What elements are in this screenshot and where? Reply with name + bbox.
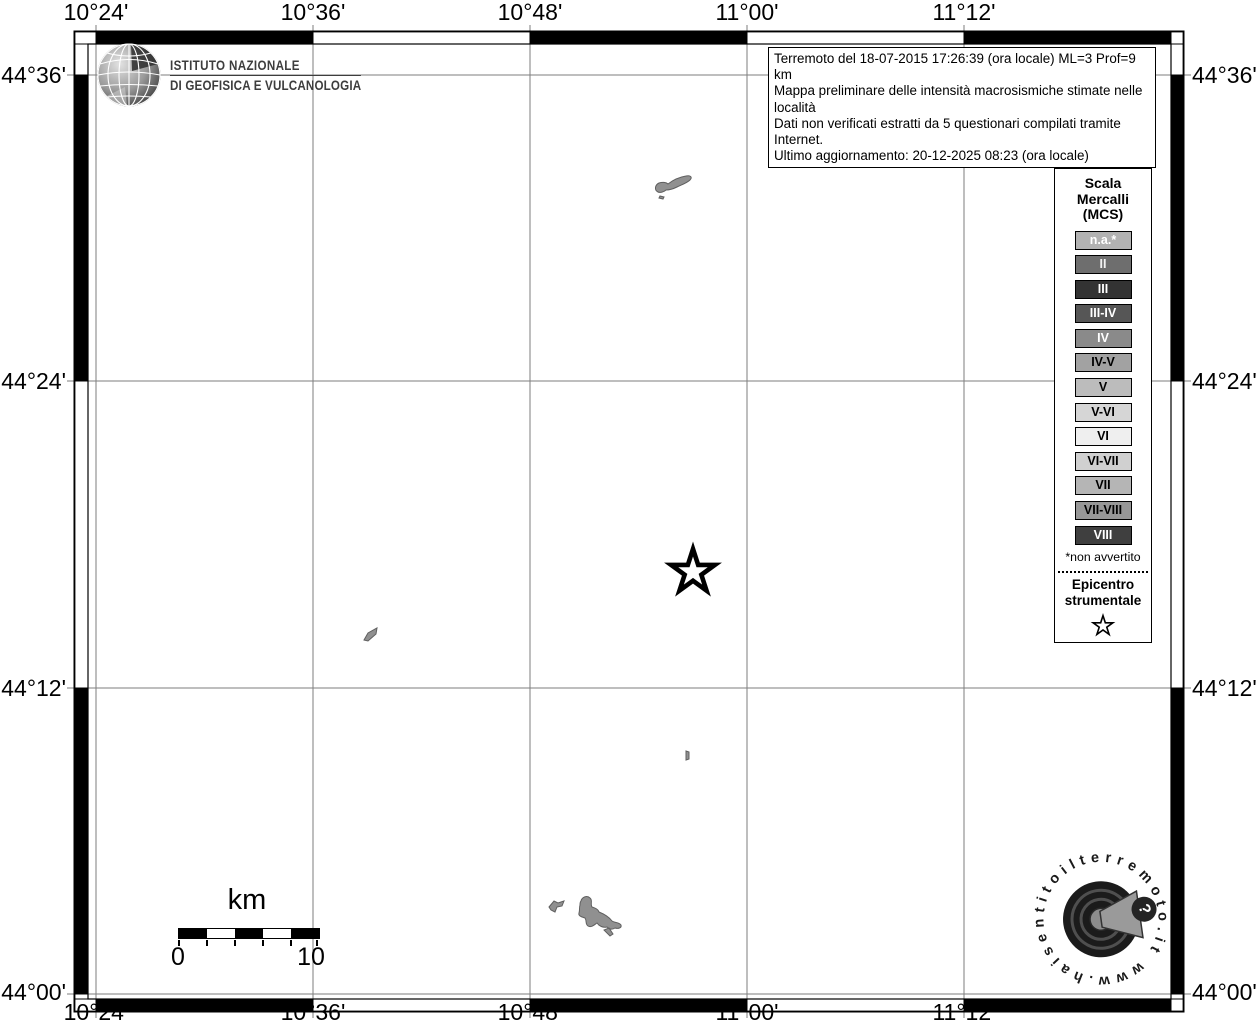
earthquake-info-box: Terremoto del 18-07-2015 17:26:39 (ora l… xyxy=(768,47,1156,168)
info-line-map: Mappa preliminare delle intensità macros… xyxy=(774,83,1150,115)
legend-item-vii-viii: VII-VIII xyxy=(1075,501,1132,520)
ingv-logo-text: ISTITUTO NAZIONALE DI GEOFISICA E VULCAN… xyxy=(170,58,361,93)
lat-label-right-2: 44°24' xyxy=(1192,368,1256,394)
legend-item-na: n.a.* xyxy=(1075,231,1132,250)
ingv-globe-icon xyxy=(96,42,162,108)
lon-label-bottom-3: 10°48' xyxy=(470,1000,590,1024)
lon-label-bottom-5: 11°12' xyxy=(904,1000,1024,1024)
lat-label-right-4: 44°00' xyxy=(1192,979,1256,1005)
lon-label-top-4: 11°00' xyxy=(687,0,807,24)
legend-title-line1: Scala xyxy=(1055,176,1151,192)
info-line-update: Ultimo aggiornamento: 20-12-2025 08:23 (… xyxy=(774,148,1150,164)
haisentitoilterremoto-logo: ? www.haisentitoilterremoto.it xyxy=(1028,845,1178,995)
small-feature xyxy=(364,628,377,641)
scale-tick xyxy=(206,940,208,946)
ingv-logo-line2: DI GEOFISICA E VULCANOLOGIA xyxy=(170,76,361,93)
scale-tick xyxy=(234,940,236,946)
lon-label-top-1: 10°24' xyxy=(36,0,156,24)
lat-label-left-1: 44°36' xyxy=(0,62,66,88)
info-line-data: Dati non verificati estratti da 5 questi… xyxy=(774,116,1150,148)
legend-star-icon xyxy=(1089,612,1117,640)
lat-label-left-3: 44°12' xyxy=(0,675,66,701)
lake-feature xyxy=(655,176,691,199)
legend-item-vi-vii: VI-VII xyxy=(1075,452,1132,471)
lon-label-top-5: 11°12' xyxy=(904,0,1024,24)
lat-label-left-4: 44°00' xyxy=(0,979,66,1005)
coastline-features xyxy=(364,176,691,936)
legend-item-iii-iv: III-IV xyxy=(1075,304,1132,323)
scale-bar-unit: km xyxy=(187,884,307,917)
lon-label-top-2: 10°36' xyxy=(253,0,373,24)
tiny-feature xyxy=(686,751,689,760)
lon-label-bottom-2: 10°36' xyxy=(253,1000,373,1024)
legend-divider xyxy=(1058,571,1148,573)
scale-bar-end: 10 xyxy=(291,943,331,972)
map-frame-band xyxy=(74,31,1184,1012)
grid-lines xyxy=(67,25,1191,1018)
ingv-logo: ISTITUTO NAZIONALE DI GEOFISICA E VULCAN… xyxy=(96,42,356,112)
legend-item-v: V xyxy=(1075,378,1132,397)
scale-tick xyxy=(262,940,264,946)
scale-bar-segment xyxy=(235,929,263,938)
legend-footnote: *non avvertito xyxy=(1055,550,1151,564)
scale-bar-segment xyxy=(263,929,291,938)
scale-bar-segment xyxy=(179,929,207,938)
legend-item-iv-v: IV-V xyxy=(1075,353,1132,372)
epicenter-star-marker xyxy=(671,549,715,591)
scale-bar-segment xyxy=(291,929,319,938)
legend-epicenter-label: Epicentro strumentale xyxy=(1055,577,1151,608)
legend-epicenter-line1: Epicentro xyxy=(1055,577,1151,593)
river-feature-small xyxy=(549,901,564,912)
lon-label-bottom-4: 11°00' xyxy=(687,1000,807,1024)
river-feature-large xyxy=(579,897,621,936)
macroseismic-map-page: 10°24' 10°36' 10°48' 11°00' 11°12' 10°24… xyxy=(0,0,1256,1024)
lat-label-right-1: 44°36' xyxy=(1192,62,1256,88)
legend-item-viii: VIII xyxy=(1075,526,1132,545)
legend-title-line3: (MCS) xyxy=(1055,207,1151,223)
legend-title-line2: Mercalli xyxy=(1055,192,1151,208)
mercalli-legend: Scala Mercalli (MCS) n.a.* II III III-IV… xyxy=(1054,168,1152,643)
lat-label-left-2: 44°24' xyxy=(0,368,66,394)
info-line-event: Terremoto del 18-07-2015 17:26:39 (ora l… xyxy=(774,51,1150,83)
legend-item-ii: II xyxy=(1075,255,1132,274)
scale-bar-start: 0 xyxy=(158,943,198,972)
legend-item-iii: III xyxy=(1075,280,1132,299)
scale-bar xyxy=(178,928,320,939)
legend-items: n.a.* II III III-IV IV IV-V V V-VI VI VI… xyxy=(1055,231,1151,545)
ingv-logo-line1: ISTITUTO NAZIONALE xyxy=(170,58,361,76)
lat-label-right-3: 44°12' xyxy=(1192,675,1256,701)
legend-item-iv: IV xyxy=(1075,329,1132,348)
scale-bar-segment xyxy=(207,929,235,938)
legend-title: Scala Mercalli (MCS) xyxy=(1055,169,1151,223)
legend-item-v-vi: V-VI xyxy=(1075,403,1132,422)
map-frame-lines xyxy=(75,32,1184,1012)
legend-item-vi: VI xyxy=(1075,427,1132,446)
lon-label-top-3: 10°48' xyxy=(470,0,590,24)
legend-epicenter-line2: strumentale xyxy=(1055,593,1151,609)
legend-item-vii: VII xyxy=(1075,476,1132,495)
